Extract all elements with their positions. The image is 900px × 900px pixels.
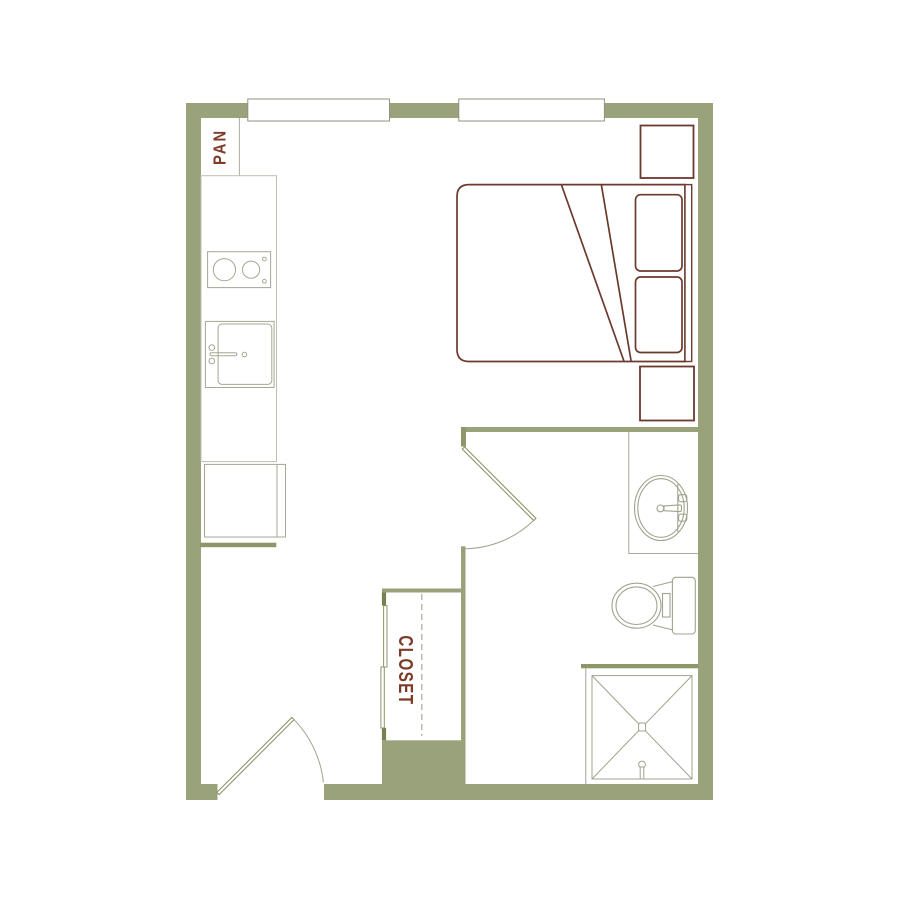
svg-text:PAN: PAN	[210, 129, 230, 165]
svg-text:CLOSET: CLOSET	[394, 635, 417, 705]
